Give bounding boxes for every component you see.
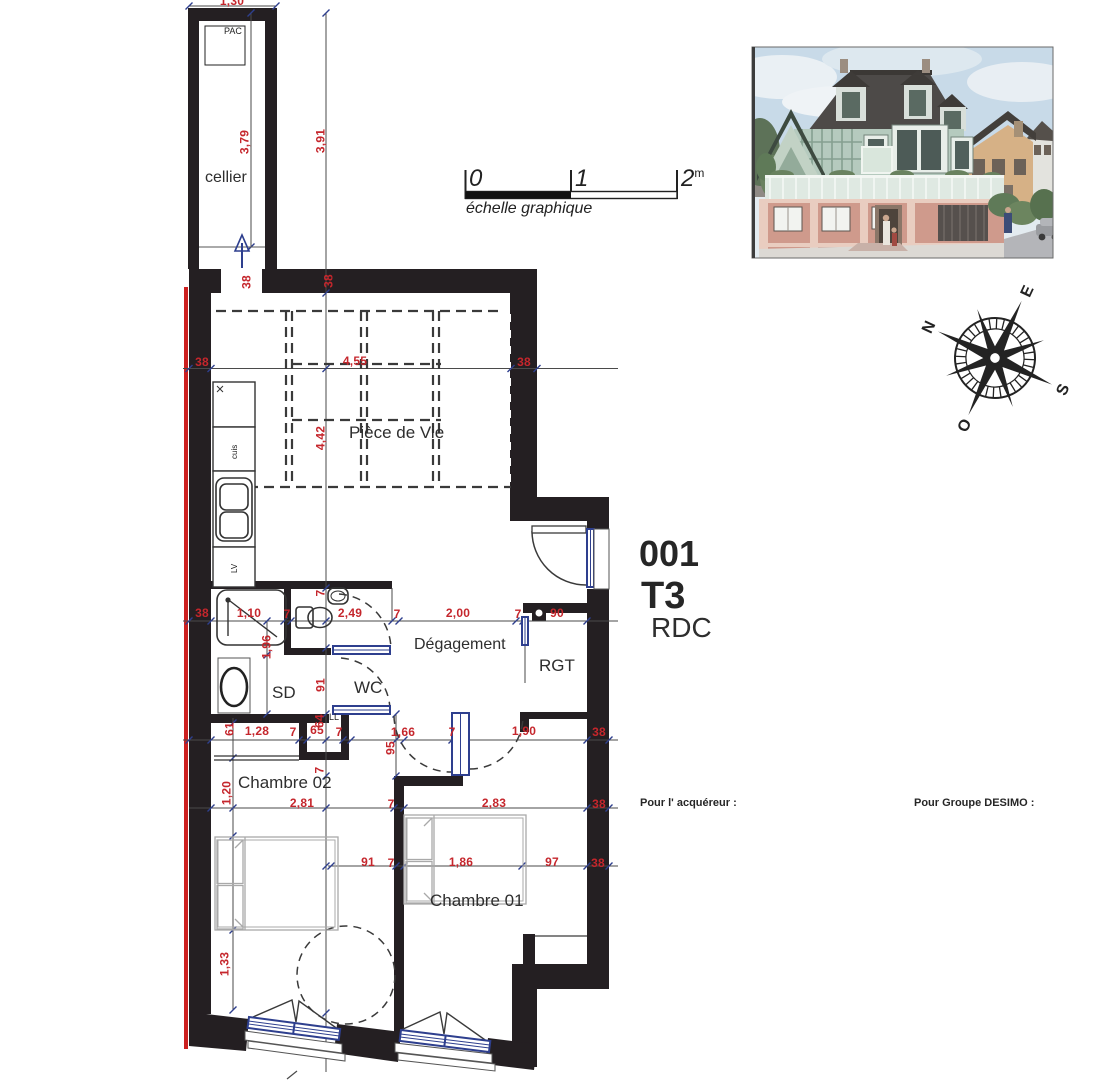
- svg-text:N: N: [919, 319, 939, 337]
- svg-text:E: E: [1018, 283, 1038, 300]
- svg-text:S: S: [1053, 381, 1073, 398]
- svg-text:O: O: [955, 416, 976, 434]
